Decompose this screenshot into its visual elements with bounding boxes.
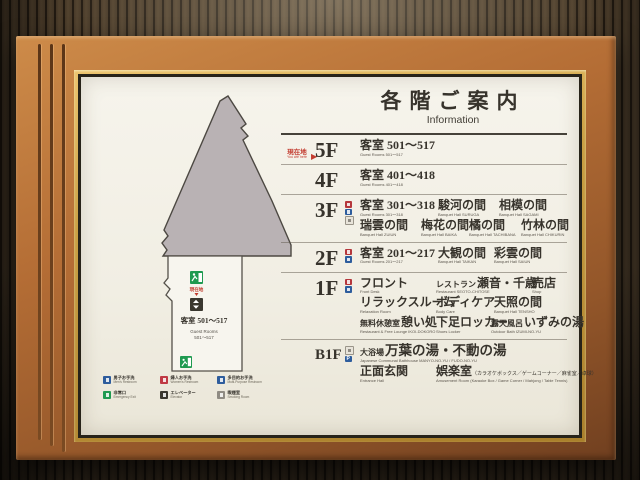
photo-scene: 現在地 客室 501〜517 Guest Rooms 501〜517 bbox=[0, 0, 640, 480]
facility-item: 売店 Shop bbox=[532, 277, 556, 295]
elevator-icon bbox=[345, 209, 352, 216]
facility-item: レストラン瀬音・千歳 Restaurant SEOTO-CHITOSE bbox=[436, 277, 532, 295]
legend-label-en: Multi-Purpose Restroom bbox=[228, 381, 262, 385]
facility-item: 客室 201〜217 Guest Rooms 201〜217 bbox=[360, 247, 438, 265]
facility-item: 駿河の間 Banquet Hall SURUGA bbox=[438, 199, 499, 217]
floor-icons bbox=[345, 247, 360, 263]
facility-en: Banquet Hall TAIKAN bbox=[438, 260, 494, 264]
facility-jp: 相模の間 bbox=[499, 199, 547, 212]
legend-mens-restroom: 男子お手洗 Men's Restroom bbox=[103, 376, 160, 388]
floor-directory: 各階ご案内 Information 5F 客室 501〜517 bbox=[281, 89, 567, 388]
legend-label-en: Elevator bbox=[171, 396, 196, 400]
facility-jp: 彩雲の間 bbox=[494, 247, 542, 260]
facility-jp: 娯楽室 bbox=[436, 364, 472, 378]
facility-item: 客室 301〜318 Guest Rooms 301〜318 bbox=[360, 199, 438, 217]
floor-label: 1F bbox=[315, 277, 345, 299]
facility-item: 瑞雲の間 Banquet Hall ZUIUN bbox=[360, 219, 421, 237]
facility-en: Restaurant & Free Lounge IKOI-DOKORO bbox=[360, 330, 436, 334]
facility-en: Outdoor Bath IZUMI-NO-YU bbox=[491, 330, 584, 334]
floor-label: 4F bbox=[315, 169, 345, 191]
elevator-icon bbox=[160, 391, 168, 399]
facility-jp-prefix: 無料休憩室 bbox=[360, 319, 400, 328]
facility-en: Guest Rooms 201〜217 bbox=[360, 260, 438, 264]
facility-jp: 橘の間 bbox=[469, 219, 521, 232]
elevator-icon bbox=[345, 286, 352, 293]
floor-row-b1f: B1F 大浴場万葉の湯・不動の湯 Japanese Communal Bathh… bbox=[281, 340, 567, 388]
floor-label: 2F bbox=[315, 247, 345, 269]
floor-icons bbox=[345, 277, 360, 293]
facility-jp: 客室 501〜517 bbox=[360, 139, 456, 152]
floor-plan-map: 現在地 客室 501〜517 Guest Rooms 501〜517 bbox=[120, 85, 300, 385]
facility-en: Banquet Hall SURUGA bbox=[438, 213, 499, 217]
floor-icons bbox=[345, 199, 360, 225]
facility-jp-prefix: 露天風呂 bbox=[491, 319, 523, 328]
legend-label-en: Women's Restroom bbox=[171, 381, 199, 385]
facility-en: Shop bbox=[532, 290, 556, 294]
emergency-exit-icon bbox=[103, 391, 111, 399]
facility-jp: フロント bbox=[360, 277, 436, 290]
legend-emergency-exit: 非常口 Emergency Exit bbox=[103, 391, 160, 403]
floor-label: 3F bbox=[315, 199, 345, 221]
legend-label-en: Smoking Room bbox=[228, 396, 250, 400]
facility-jp: 万葉の湯・不動の湯 bbox=[385, 343, 507, 358]
facility-item: 客室 501〜517 Guest Rooms 501〜517 bbox=[360, 139, 456, 157]
facility-en: Body Care bbox=[436, 310, 494, 314]
facility-jp: 竹林の間 bbox=[521, 219, 569, 232]
facility-item: リラックスルーム Relaxation Room bbox=[360, 296, 436, 314]
map-room-range-jp: 客室 501〜517 bbox=[180, 315, 228, 325]
floor-icons bbox=[345, 344, 360, 362]
map-room-range-en2: 501〜517 bbox=[194, 335, 214, 340]
facility-en: Banquet Hall TENSHO bbox=[494, 310, 542, 314]
floor-row-5f: 5F 客室 501〜517 Guest Rooms 501〜517 bbox=[281, 135, 567, 165]
legend-label-en: Men's Restroom bbox=[114, 381, 137, 385]
facility-en: Shoes Locker bbox=[436, 330, 491, 334]
gold-bevel: 現在地 客室 501〜517 Guest Rooms 501〜517 bbox=[74, 70, 586, 442]
facility-item: 客室 401〜418 Guest Rooms 401〜418 bbox=[360, 169, 456, 187]
smoking-room-icon bbox=[217, 391, 225, 399]
mens-restroom-icon bbox=[103, 376, 111, 384]
facility-en: Banquet Hall BAIKA bbox=[421, 233, 469, 237]
emergency-exit-icon bbox=[180, 356, 192, 368]
sign-title-jp: 各階ご案内 bbox=[281, 89, 567, 113]
legend-smoking-room: 喫煙室 Smoking Room bbox=[217, 391, 274, 403]
floor-row-4f: 4F 客室 401〜418 Guest Rooms 401〜418 bbox=[281, 165, 567, 195]
floor-icons bbox=[345, 169, 360, 171]
legend-label-en: Emergency Exit bbox=[114, 396, 136, 400]
floor-row-1f: 1F フロント Front Desk bbox=[281, 273, 567, 340]
womens-restroom-icon bbox=[160, 376, 168, 384]
legend-accessible-restroom: 多目的お手洗 Multi-Purpose Restroom bbox=[217, 376, 274, 388]
escalator-icon bbox=[345, 249, 352, 256]
floor-icons bbox=[345, 139, 360, 141]
facility-item: 露天風呂いずみの湯 Outdoor Bath IZUMI-NO-YU bbox=[491, 316, 584, 334]
emergency-exit-icon bbox=[190, 271, 203, 284]
sign-frame: 現在地 客室 501〜517 Guest Rooms 501〜517 bbox=[16, 36, 616, 460]
frame-groove bbox=[38, 44, 41, 440]
facility-jp: いずみの湯 bbox=[524, 315, 584, 329]
escalator-icon bbox=[345, 279, 352, 286]
facility-jp: 客室 401〜418 bbox=[360, 169, 456, 182]
facility-en: Front Desk bbox=[360, 290, 436, 294]
facility-en: Amusement Room (Karaoke Box / Game Corne… bbox=[436, 379, 597, 383]
facility-item: 梅花の間 Banquet Hall BAIKA bbox=[421, 219, 469, 237]
parking-icon bbox=[345, 356, 352, 363]
facility-jp: 瑞雲の間 bbox=[360, 219, 421, 232]
facility-jp: 客室 201〜217 bbox=[360, 247, 438, 260]
floor-label: B1F bbox=[315, 344, 345, 363]
facility-en: Relaxation Room bbox=[360, 310, 436, 314]
facility-item: 下足ロッカー Shoes Locker bbox=[436, 316, 491, 334]
vending-machine-icon bbox=[345, 216, 354, 225]
facility-jp: 売店 bbox=[532, 277, 556, 290]
facility-en: Banquet Hall SAGAMI bbox=[499, 213, 547, 217]
legend-womens-restroom: 婦人お手洗 Women's Restroom bbox=[160, 376, 217, 388]
facility-item: 相模の間 Banquet Hall SAGAMI bbox=[499, 199, 547, 217]
frame-groove bbox=[50, 44, 53, 446]
smoking-room-icon bbox=[345, 346, 354, 355]
sign-face: 現在地 客室 501〜517 Guest Rooms 501〜517 bbox=[81, 77, 579, 435]
accessible-restroom-icon bbox=[217, 376, 225, 384]
map-current-location-label: 現在地 bbox=[190, 286, 204, 293]
facility-jp: 憩い処 bbox=[401, 315, 437, 329]
legend-elevator: エレベーター Elevator bbox=[160, 391, 217, 403]
facility-en: Guest Rooms 301〜318 bbox=[360, 213, 438, 217]
facility-item: 天照の間 Banquet Hall TENSHO bbox=[494, 296, 542, 314]
facility-jp: 梅花の間 bbox=[421, 219, 469, 232]
facility-item: 橘の間 Banquet Hall TACHIBANA bbox=[469, 219, 521, 237]
facility-jp: 天照の間 bbox=[494, 296, 542, 309]
facility-jp-prefix: レストラン bbox=[436, 280, 476, 289]
facility-en: Banquet Hall SAIUN bbox=[494, 260, 542, 264]
facility-en: Banquet Hall ZUIUN bbox=[360, 233, 421, 237]
facility-en: Guest Rooms 401〜418 bbox=[360, 183, 456, 187]
facility-en: Guest Rooms 501〜517 bbox=[360, 153, 456, 157]
facility-item: 大浴場万葉の湯・不動の湯 Japanese Communal Bathhouse… bbox=[360, 344, 507, 363]
building-footprint bbox=[162, 96, 291, 256]
facility-jp: 客室 301〜318 bbox=[360, 199, 438, 212]
facility-item: フロント Front Desk bbox=[360, 277, 436, 295]
facility-item: 大観の間 Banquet Hall TAIKAN bbox=[438, 247, 494, 265]
facility-jp: 正面玄関 bbox=[360, 365, 436, 378]
facility-item: 正面玄関 Entrance Hall bbox=[360, 365, 436, 383]
facility-en: Banquet Hall TACHIBANA bbox=[469, 233, 521, 237]
facility-jp-prefix: 大浴場 bbox=[360, 348, 384, 357]
facility-jp-note: （カラオケボックス／ゲームコーナー／麻雀室／卓球） bbox=[472, 372, 597, 377]
facility-item: 竹林の間 Banquet Hall CHIKURIN bbox=[521, 219, 569, 237]
facility-jp: 瀬音・千歳 bbox=[477, 276, 537, 290]
facility-en: Banquet Hall CHIKURIN bbox=[521, 233, 569, 237]
facility-en: Entrance Hall bbox=[360, 379, 436, 383]
facility-jp: 駿河の間 bbox=[438, 199, 499, 212]
facility-en: Japanese Communal Bathhouse MANYO-NO-YU … bbox=[360, 359, 507, 363]
facility-item: 娯楽室（カラオケボックス／ゲームコーナー／麻雀室／卓球） Amusement R… bbox=[436, 365, 597, 383]
facility-jp: 大観の間 bbox=[438, 247, 494, 260]
facility-item: ボディケア Body Care bbox=[436, 296, 494, 314]
inner-rim: 現在地 客室 501〜517 Guest Rooms 501〜517 bbox=[78, 74, 582, 438]
facility-jp: 下足ロッカー bbox=[436, 316, 491, 329]
facility-jp: リラックスルーム bbox=[360, 296, 436, 309]
map-room-range-en1: Guest Rooms bbox=[190, 329, 218, 334]
escalator-icon bbox=[345, 201, 352, 208]
facility-item: 無料休憩室憩い処 Restaurant & Free Lounge IKOI-D… bbox=[360, 316, 436, 334]
sign-title-en: Information bbox=[281, 114, 567, 126]
elevator-icon bbox=[190, 298, 203, 311]
facility-jp: ボディケア bbox=[436, 296, 494, 309]
facility-en: Restaurant SEOTO-CHITOSE bbox=[436, 290, 532, 294]
facility-item: 彩雲の間 Banquet Hall SAIUN bbox=[494, 247, 542, 265]
map-legend: 男子お手洗 Men's Restroom 婦人お手洗 Women's Restr… bbox=[103, 376, 274, 403]
elevator-icon bbox=[345, 256, 352, 263]
floor-row-3f: 3F 客室 301〜318 Guest Rooms 30 bbox=[281, 195, 567, 243]
floor-row-2f: 2F 客室 201〜217 Guest Rooms 201〜217 bbox=[281, 243, 567, 273]
floor-label: 5F bbox=[315, 139, 345, 161]
frame-groove bbox=[62, 44, 65, 452]
